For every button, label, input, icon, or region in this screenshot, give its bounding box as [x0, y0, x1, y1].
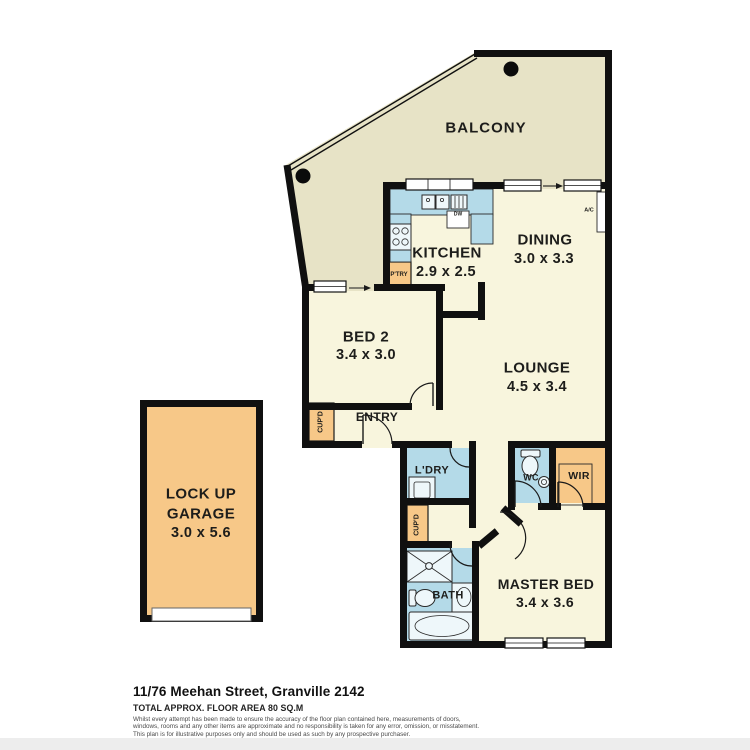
cooktop — [390, 224, 411, 250]
lounge-label: LOUNGE — [504, 361, 571, 376]
floor-plan-canvas: BALCONY DINING 3.0 x 3.3 KITCHEN 2.9 x 2… — [0, 0, 750, 750]
entry-label: ENTRY — [356, 411, 398, 423]
wall-kitchen-bottom — [383, 284, 445, 291]
laundry-label: L'DRY — [415, 466, 449, 477]
disclaimer-line-1: Whilst every attempt has been made to en… — [133, 716, 479, 723]
living-dining-floor — [387, 185, 612, 448]
balcony-column-right — [504, 62, 519, 77]
wall-balcony-top — [474, 50, 612, 57]
wall-wc-left — [508, 441, 515, 510]
bathtub — [409, 612, 476, 640]
wall-laundry-top — [400, 441, 452, 448]
lounge-dims: 4.5 x 3.4 — [507, 380, 567, 395]
wall-laundry-right — [469, 441, 476, 505]
garage-label-line2: GARAGE — [167, 507, 235, 522]
garage-label-line1: LOCK UP — [166, 487, 236, 502]
wall-right — [605, 50, 612, 648]
dishwasher-label: DW — [454, 213, 462, 218]
bath-label: BATH — [432, 591, 463, 602]
wall-lounge-bottom — [508, 441, 612, 448]
kitchen-dims: 2.9 x 2.5 — [416, 265, 476, 280]
dining-label: DINING — [518, 233, 573, 248]
wc-basin — [539, 477, 550, 488]
shower-drain — [426, 563, 433, 570]
balcony-label: BALCONY — [445, 121, 526, 136]
wall-bed2-bottom — [302, 403, 412, 410]
kitchen-sink-left — [422, 195, 435, 209]
bottom-edge-band — [0, 738, 750, 750]
wall-kitchen-stub-h — [438, 311, 485, 318]
wall-laundry-bottom — [400, 498, 476, 505]
dining-dims: 3.0 x 3.3 — [514, 252, 574, 267]
pantry-label: P'TRY — [390, 272, 407, 278]
garage-dims: 3.0 x 5.6 — [171, 526, 231, 541]
floor-plan-drawing — [0, 0, 750, 750]
disclaimer-text: Whilst every attempt has been made to en… — [133, 716, 479, 738]
garage-door — [152, 608, 251, 621]
wall-hall-stub — [469, 498, 476, 528]
kitchen-label: KITCHEN — [412, 246, 481, 261]
wc-label: WC — [523, 474, 538, 483]
footer: 11/76 Meehan Street, Granville 2142 TOTA… — [133, 684, 479, 738]
master-dims: 3.4 x 3.6 — [516, 595, 574, 609]
wall-kitchen-left — [383, 182, 390, 291]
disclaimer-line-2: windows, rooms and any other items are a… — [133, 723, 479, 730]
wir-label: WIR — [568, 471, 590, 482]
balcony-column-left — [296, 169, 311, 184]
wall-bath-master-divider — [472, 541, 479, 648]
kitchen-sink-right — [436, 195, 449, 209]
wall-wir-bottom-right — [583, 503, 612, 510]
bed2-dims: 3.4 x 3.0 — [336, 348, 396, 363]
wall-wc-wir-divider — [549, 441, 556, 510]
kitchen-counter-right — [471, 214, 493, 244]
wall-left-lower — [302, 287, 309, 448]
master-label: MASTER BED — [498, 577, 595, 591]
wall-bed2-right — [436, 284, 443, 410]
wall-bath-top — [400, 541, 452, 548]
address-text: 11/76 Meehan Street, Granville 2142 — [133, 684, 479, 699]
hall-cupboard-label: CUP'D — [414, 514, 421, 536]
bed2-label: BED 2 — [343, 330, 389, 345]
wall-entry-bottom-left — [302, 441, 362, 448]
entry-cupboard-label: CUP'D — [318, 411, 325, 433]
floor-area-text: TOTAL APPROX. FLOOR AREA 80 SQ.M — [133, 703, 479, 713]
kitchen-window — [406, 179, 473, 190]
ac-label: A/C — [584, 208, 593, 214]
